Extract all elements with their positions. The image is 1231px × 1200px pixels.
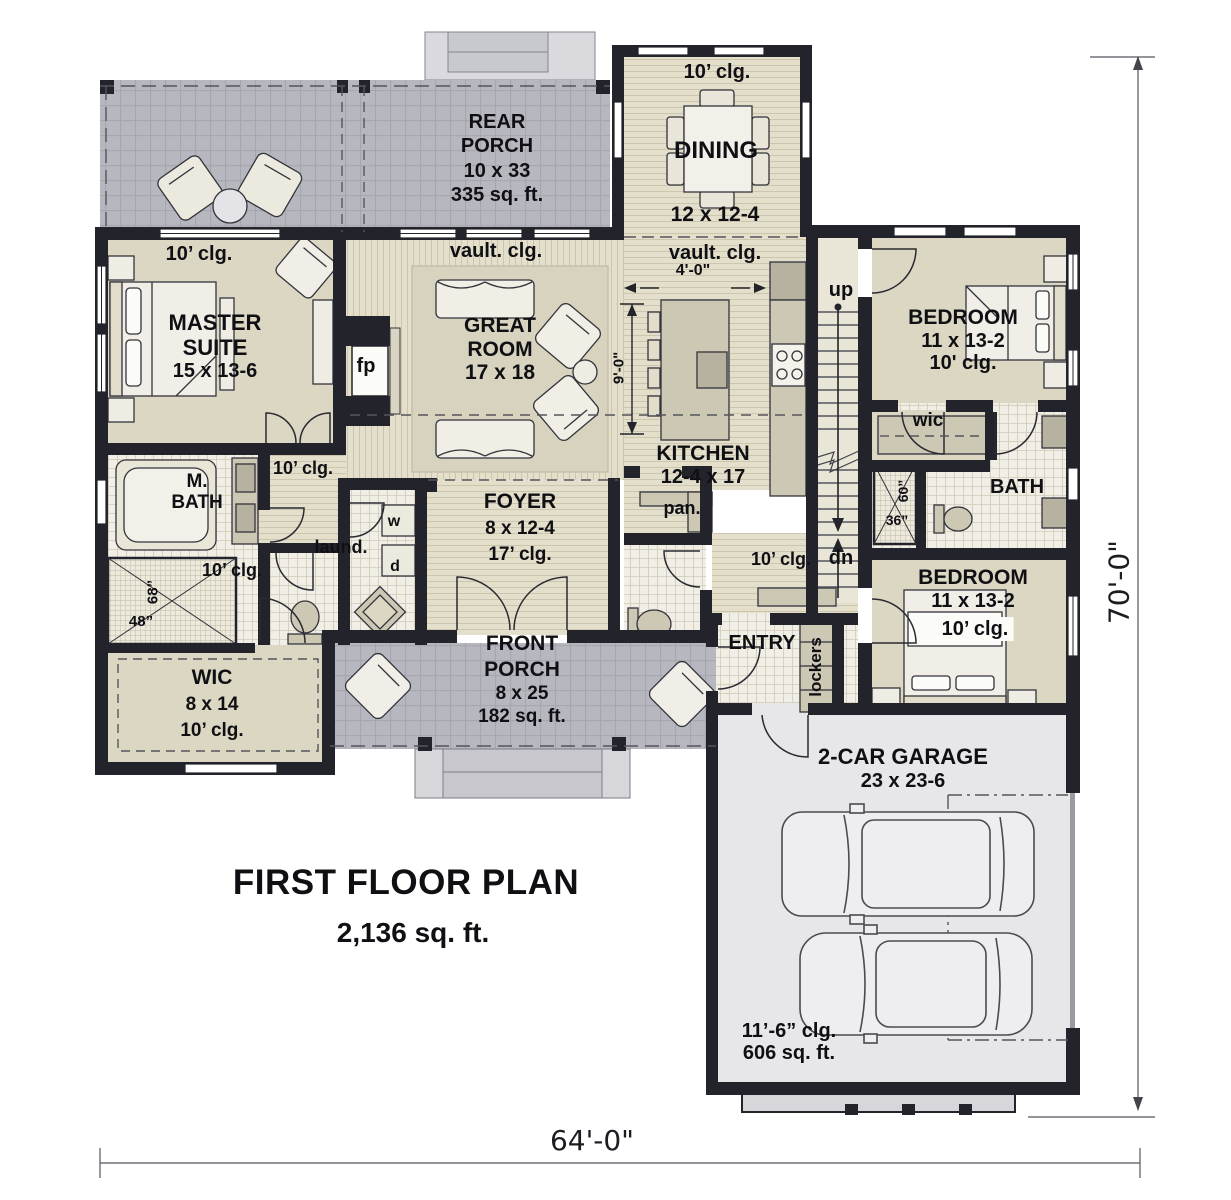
label-wic-master: WIC 8 x 14 10’ clg. [180, 664, 243, 743]
garage-name: 2-CAR GARAGE [818, 745, 988, 770]
garage-dims: 23 x 23-6 [818, 770, 988, 792]
label-fireplace: fp [357, 354, 376, 378]
label-laundry: laund. [315, 537, 368, 559]
label-dining: DINING [674, 136, 758, 165]
label-wic2: wic [913, 409, 944, 432]
label-washer: w [388, 512, 400, 532]
label-great-room: GREAT ROOM 17 x 18 [464, 314, 536, 385]
garage-area: 606 sq. ft. [742, 1042, 837, 1064]
rear-porch-dims: 10 x 33 [451, 159, 543, 183]
label-stairs-up: up [829, 278, 853, 302]
label-kitchen: KITCHEN 12-4 x 17 [656, 442, 749, 488]
label-bedroom2: BEDROOM 11 x 13-2 10' clg. [908, 306, 1018, 374]
rear-porch-name-2: PORCH [451, 134, 543, 158]
label-master-bath: M. BATH [171, 471, 222, 514]
label-hall-entry-ceiling: 10’ clg. [751, 549, 811, 571]
kitchen-dims: 12-4 x 17 [656, 466, 749, 488]
label-master-suite: MASTER SUITE 15 x 13-6 [169, 311, 262, 383]
master-dims: 15 x 13-6 [169, 360, 262, 382]
label-mbath-ceiling: 10’ clg. [202, 560, 262, 582]
label-island-depth: 9'-0" [611, 352, 628, 384]
rear-porch-name-1: REAR [451, 110, 543, 134]
foyer-ceiling: 17’ clg. [484, 542, 556, 567]
label-bath2: BATH [990, 475, 1044, 499]
label-great-room-ceiling: vault. clg. [450, 239, 542, 263]
foyer-name: FOYER [484, 488, 556, 516]
label-bedroom3-ceiling: 10’ clg. [937, 617, 1014, 641]
mbath-name-1: M. [171, 471, 222, 492]
mbath-name-2: BATH [171, 492, 222, 513]
bedroom2-name: BEDROOM [908, 306, 1018, 330]
label-dining-dims: 12 x 12-4 [671, 202, 760, 228]
bedroom2-dims: 11 x 13-2 [908, 330, 1018, 352]
overall-width-dim: 64'-0" [550, 1124, 634, 1158]
bedroom2-ceiling: 10' clg. [908, 352, 1018, 374]
plan-area: 2,136 sq. ft. [337, 916, 490, 950]
label-shower-60: 60” [895, 480, 911, 503]
label-dryer: d [390, 557, 400, 577]
label-lockers: lockers [806, 637, 826, 697]
great-room-dims: 17 x 18 [464, 361, 536, 385]
label-shower-48: 48” [129, 613, 153, 631]
foyer-dims: 8 x 12-4 [484, 516, 556, 541]
bedroom3-dims: 11 x 13-2 [918, 590, 1028, 612]
label-shower-68: 68” [145, 580, 162, 604]
wic-ceiling: 10’ clg. [180, 718, 243, 743]
great-room-name-2: ROOM [464, 338, 536, 362]
label-front-porch: FRONT PORCH 8 x 25 182 sq. ft. [478, 631, 566, 729]
label-pantry: pan. [663, 498, 700, 520]
label-garage-info: 11’-6” clg. 606 sq. ft. [742, 1020, 837, 1065]
floor-plan-page: REAR PORCH 10 x 33 335 sq. ft. 10’ clg. … [0, 0, 1231, 1200]
wic-dims: 8 x 14 [180, 692, 243, 717]
label-stairs-dn: dn [829, 546, 853, 570]
floor-plan-drawing [0, 0, 1231, 1200]
label-bedroom3: BEDROOM 11 x 13-2 [918, 566, 1028, 612]
master-name-2: SUITE [169, 336, 262, 361]
label-entry: ENTRY [728, 631, 795, 655]
front-porch-name-1: FRONT [478, 631, 566, 657]
label-hall-master-ceiling: 10’ clg. [273, 458, 333, 480]
front-porch-dims: 8 x 25 [478, 682, 566, 705]
bedroom3-name: BEDROOM [918, 566, 1028, 590]
front-porch-name-2: PORCH [478, 657, 566, 683]
label-dining-ceiling: 10’ clg. [684, 60, 751, 84]
wic-name: WIC [180, 664, 243, 692]
kitchen-name: KITCHEN [656, 442, 749, 466]
label-foyer: FOYER 8 x 12-4 17’ clg. [484, 488, 556, 567]
label-kitchen-island-offset: 4'-0" [676, 261, 711, 281]
label-shower-36: 36” [886, 512, 909, 529]
master-name-1: MASTER [169, 311, 262, 336]
front-porch-area: 182 sq. ft. [478, 705, 566, 728]
overall-depth-dim: 70'-0" [1103, 540, 1136, 624]
great-room-name-1: GREAT [464, 314, 536, 338]
plan-title: FIRST FLOOR PLAN [233, 862, 579, 905]
rear-porch-area: 335 sq. ft. [451, 183, 543, 207]
label-garage: 2-CAR GARAGE 23 x 23-6 [818, 745, 988, 792]
label-rear-porch: REAR PORCH 10 x 33 335 sq. ft. [451, 110, 543, 208]
garage-ceiling: 11’-6” clg. [742, 1020, 837, 1042]
label-master-ceiling: 10’ clg. [166, 242, 233, 266]
